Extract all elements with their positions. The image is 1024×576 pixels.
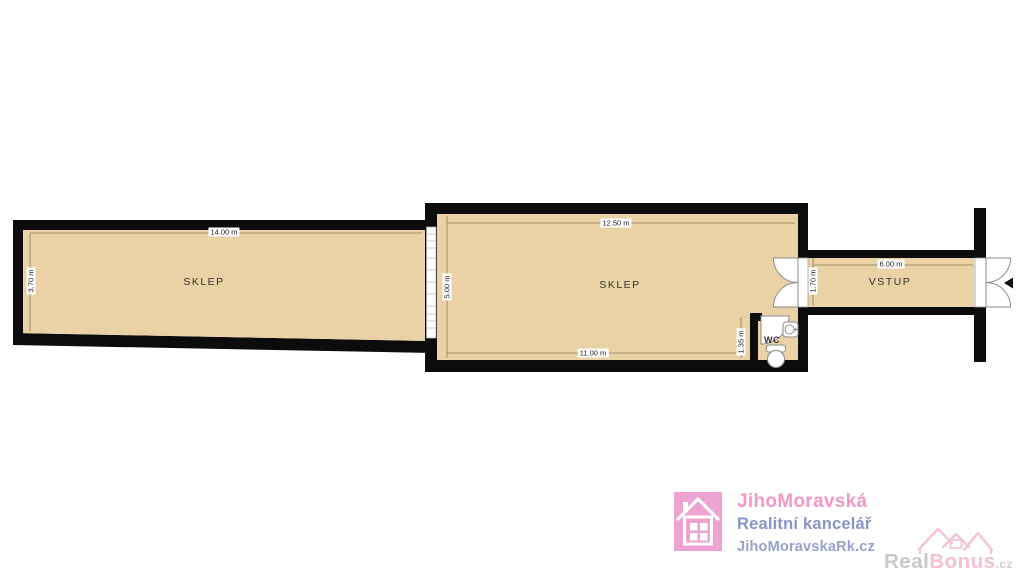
- wall-corridor-bottom: [798, 307, 986, 315]
- dim-room2-left: 5.00 m: [443, 274, 452, 301]
- floorplan-drawing: [0, 0, 1024, 576]
- watermark-real: Real: [884, 550, 929, 573]
- agency-subtitle: Realitní kancelář: [737, 513, 875, 536]
- room-label-sklep-1: SKLEP: [183, 276, 224, 288]
- partition-strip: [427, 227, 437, 338]
- wall-room2-right-upper: [798, 203, 808, 258]
- house-icon: [674, 492, 722, 551]
- dim-room2-top: 12.50 m: [600, 219, 631, 228]
- dim-room1-left: 3.70 m: [27, 268, 36, 295]
- realbonus-text: RealBonus.cz: [884, 550, 1013, 574]
- roofs-icon: [916, 502, 996, 554]
- wall-room2-top: [425, 203, 808, 214]
- wall-room2-bottom: [425, 360, 808, 372]
- room-label-sklep-2: SKLEP: [599, 279, 640, 291]
- floorplan-image: 14.00 m 3.70 m 12.50 m 5.00 m 11.00 m 1.…: [0, 0, 1024, 576]
- dim-wc: 1.35 m: [737, 329, 746, 356]
- agency-name: JihoMoravská: [737, 491, 875, 513]
- dim-room1-top: 14.00 m: [208, 228, 239, 237]
- watermark-cz: .cz: [996, 557, 1014, 571]
- entrance-arrow-icon: [1004, 278, 1013, 289]
- wall-stub-bottom-right: [974, 307, 986, 362]
- watermark-bonus: Bonus: [929, 550, 995, 573]
- realbonus-watermark: RealBonus.cz: [884, 500, 1019, 572]
- room-label-vstup: VSTUP: [869, 276, 912, 288]
- wall-room1-left: [13, 220, 23, 345]
- dim-room2-bottom: 11.00 m: [578, 349, 609, 358]
- room-label-wc: WC: [764, 335, 780, 345]
- agency-logo-text: JihoMoravská Realitní kancelář JihoMorav…: [737, 491, 875, 559]
- dim-entry-top: 6.00 m: [878, 260, 905, 269]
- agency-logo-square: [674, 492, 722, 551]
- dim-entry-left: 1.70 m: [809, 268, 818, 295]
- toilet-icon: [767, 345, 786, 368]
- sink-icon: [783, 322, 798, 337]
- wall-corridor-top: [798, 250, 986, 258]
- agency-website: JihoMoravskaRk.cz: [737, 536, 875, 559]
- wall-stub-top-right: [974, 208, 986, 258]
